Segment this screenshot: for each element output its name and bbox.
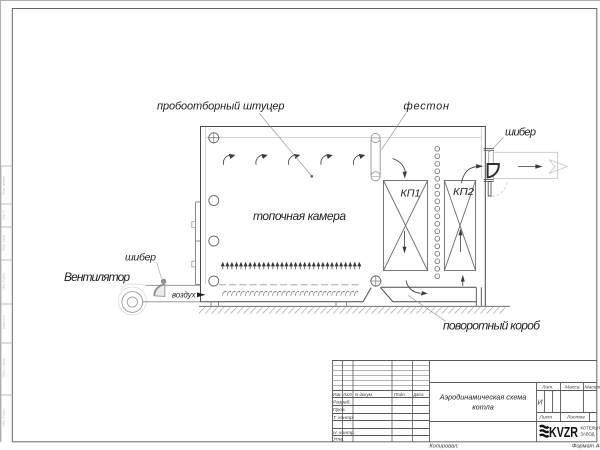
svg-text:Подп. дата: Подп. дата	[2, 235, 6, 252]
svg-text:Лист: Лист	[342, 392, 352, 398]
svg-text:топочная камера: топочная камера	[253, 209, 346, 223]
svg-text:Спр. N: Спр. N	[2, 210, 6, 220]
svg-text:Т. контр.: Т. контр.	[333, 415, 354, 421]
svg-text:поворотный короб: поворотный короб	[443, 319, 541, 333]
svg-text:И: И	[538, 400, 544, 407]
svg-text:КП2: КП2	[453, 187, 474, 198]
svg-text:Лит.: Лит.	[541, 385, 553, 391]
svg-text:ЗАВОД: ЗАВОД	[581, 432, 595, 437]
svg-text:Перв. примен.: Перв. примен.	[2, 175, 6, 195]
svg-text:Дата: Дата	[413, 392, 424, 398]
svg-text:Взам. инв.: Взам. инв.	[2, 315, 6, 330]
svg-text:Пров.: Пров.	[333, 407, 346, 413]
svg-text:KVZR: KVZR	[549, 424, 578, 441]
svg-text:Изм.: Изм.	[333, 392, 342, 398]
svg-text:Утв.: Утв.	[333, 437, 344, 443]
svg-text:Масса: Масса	[565, 385, 580, 391]
svg-text:пробоотборный штуцер: пробоотборный штуцер	[157, 101, 285, 113]
svg-text:Аэродинамическая схема: Аэродинамическая схема	[439, 393, 527, 402]
svg-text:шибер: шибер	[505, 127, 536, 139]
svg-text:Инв. N дубл.: Инв. N дубл.	[2, 272, 6, 290]
svg-text:фестон: фестон	[404, 101, 450, 113]
svg-text:КОТЕЛЬН.: КОТЕЛЬН.	[581, 426, 600, 431]
svg-text:Формат А3: Формат А3	[572, 444, 600, 450]
svg-text:котла: котла	[472, 403, 494, 412]
svg-text:Листов: Листов	[566, 415, 585, 421]
svg-text:Подп. и дата: Подп. и дата	[2, 358, 6, 377]
svg-text:N докум.: N докум.	[355, 392, 373, 398]
svg-text:Лист: Лист	[539, 415, 553, 421]
svg-text:воздух: воздух	[172, 290, 197, 299]
svg-text:КП1: КП1	[401, 189, 421, 200]
svg-text:Подп.: Подп.	[394, 392, 406, 398]
svg-text:Разраб.: Разраб.	[333, 400, 351, 406]
svg-text:Вентилятор: Вентилятор	[64, 270, 130, 284]
svg-text:Масштаб: Масштаб	[585, 385, 600, 391]
svg-text:Н. контр.: Н. контр.	[333, 430, 355, 436]
svg-text:Инв. N подл.: Инв. N подл.	[2, 408, 6, 426]
svg-text:шибер: шибер	[125, 252, 156, 264]
svg-text:Копировал:: Копировал:	[429, 444, 459, 450]
